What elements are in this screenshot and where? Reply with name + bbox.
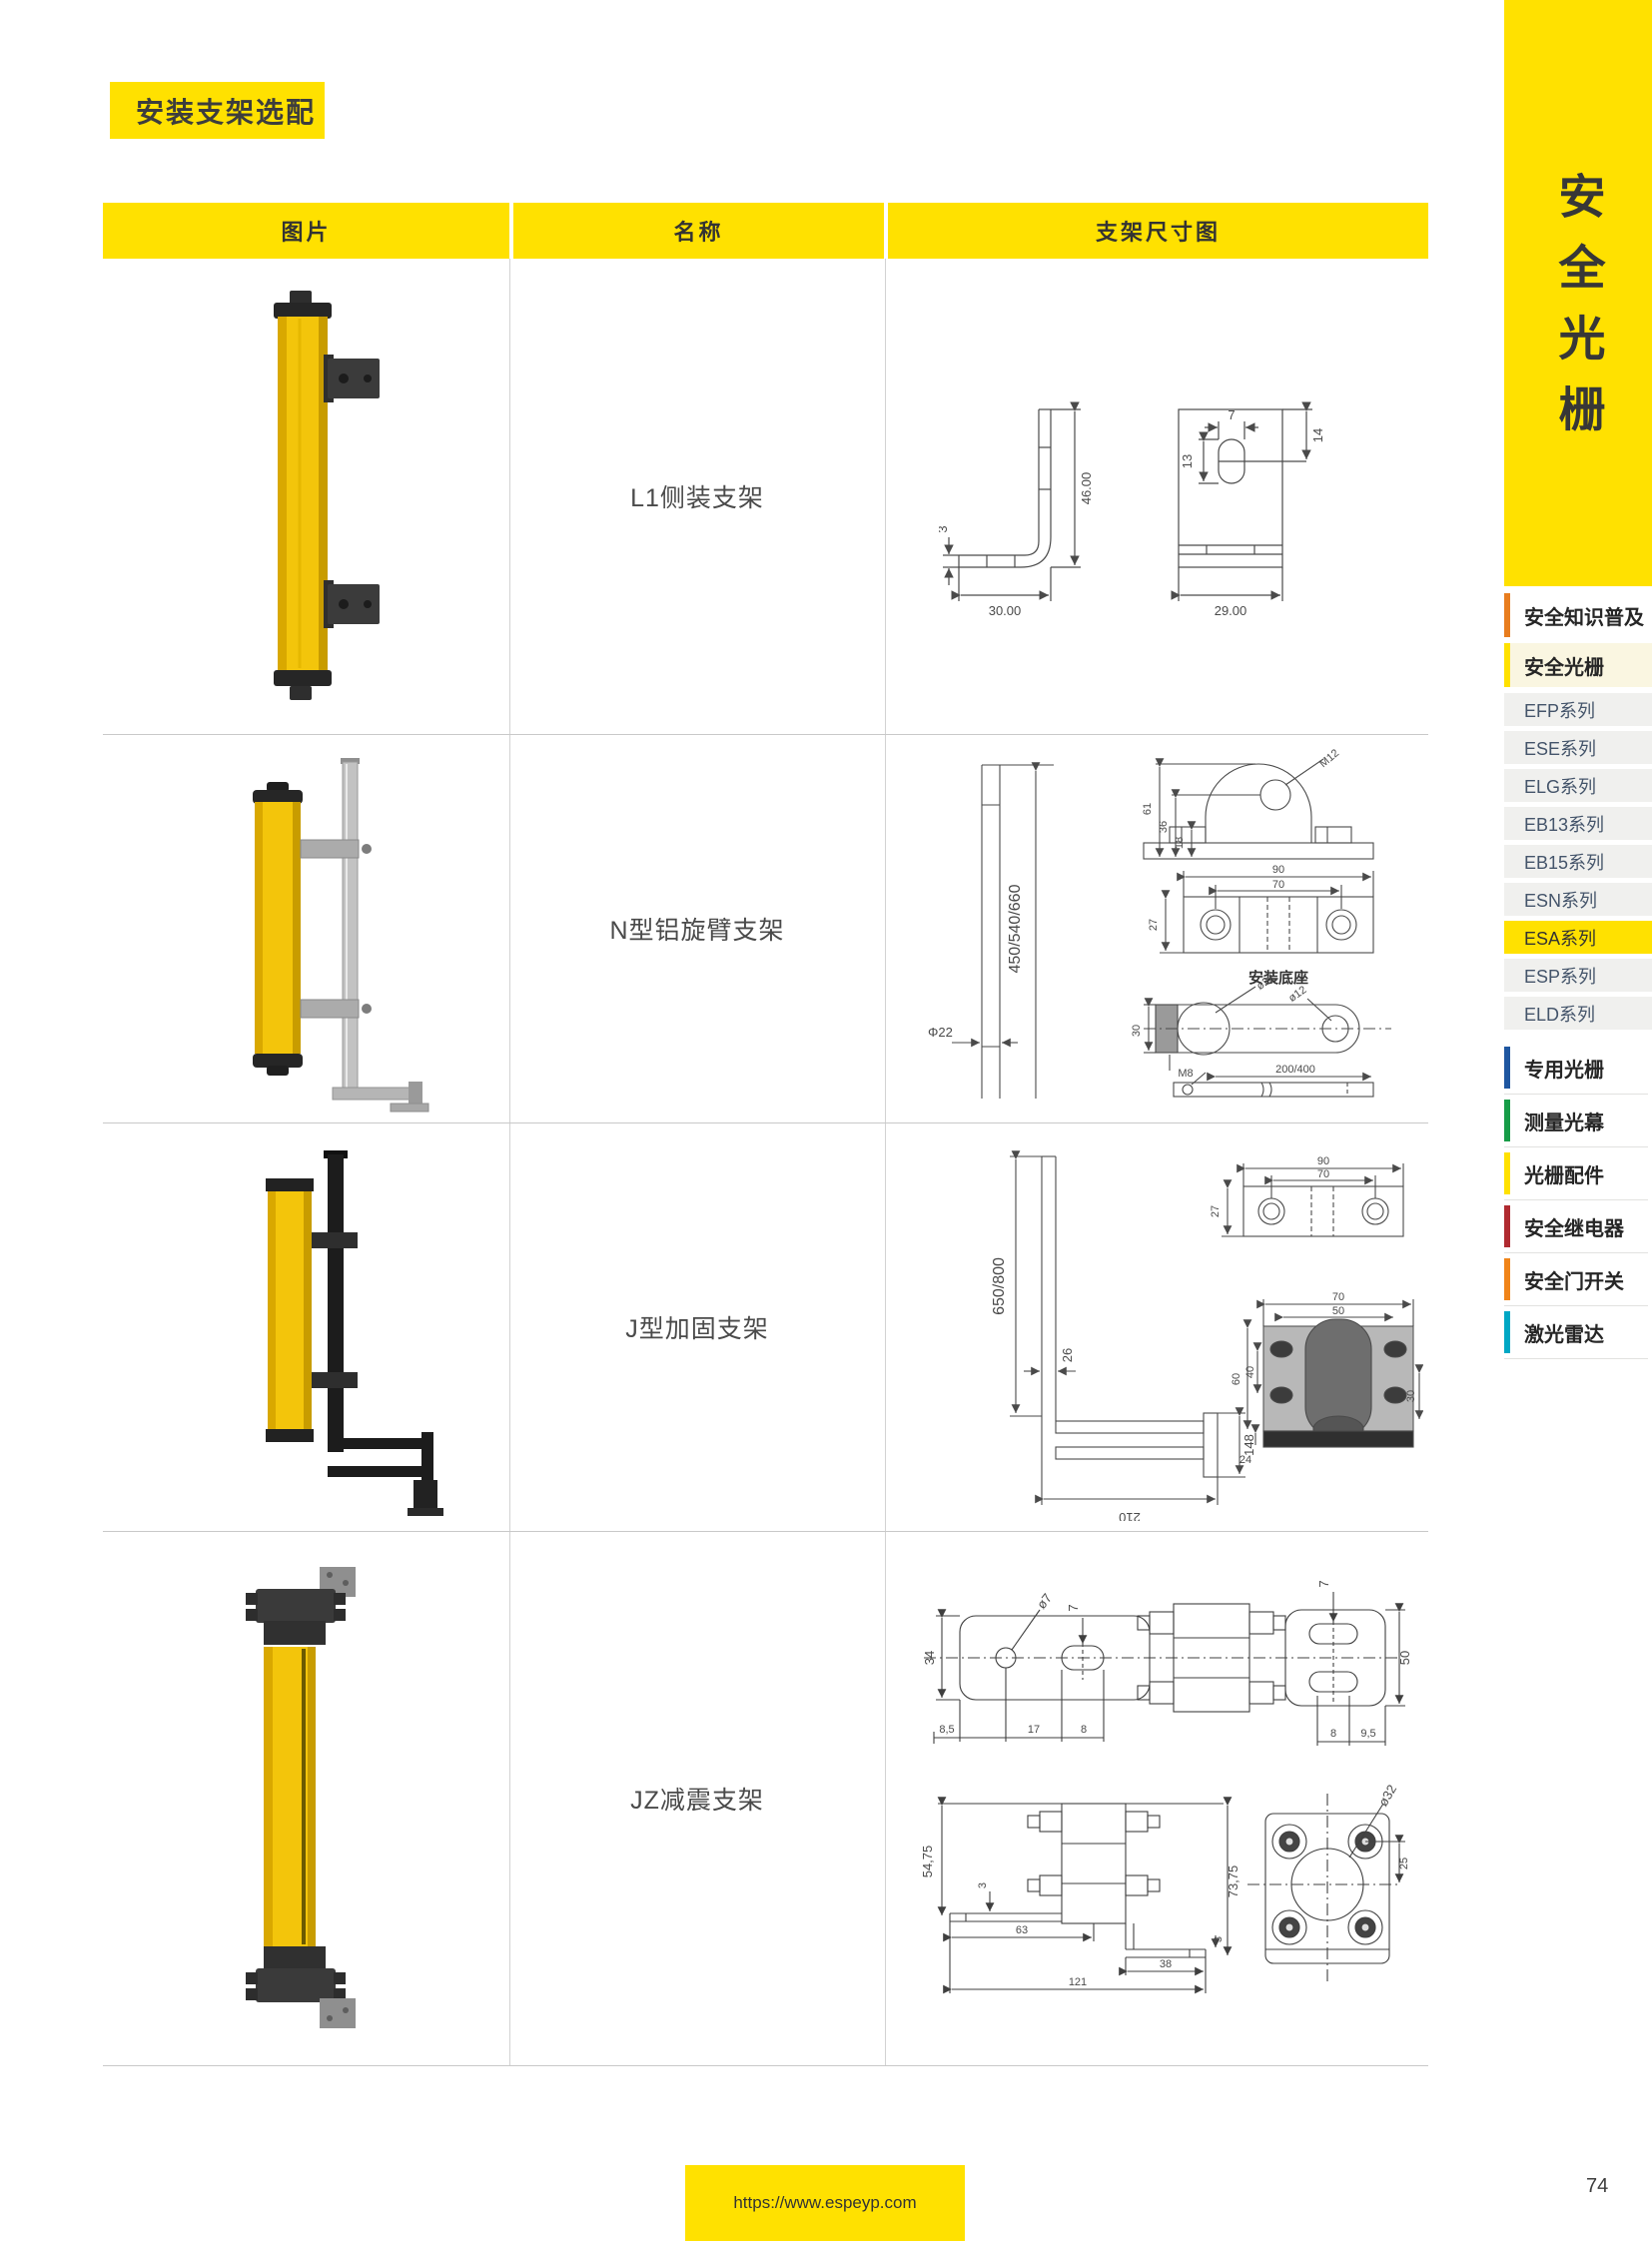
svg-text:7: 7 bbox=[1316, 1580, 1331, 1587]
divider bbox=[1504, 1146, 1648, 1147]
sidebar-item-safety-door-switch[interactable]: 安全门开关 bbox=[1504, 1258, 1652, 1300]
sidebar-item-grating-accessories[interactable]: 光栅配件 bbox=[1504, 1152, 1652, 1194]
sidebar-item-safety-knowledge[interactable]: 安全知识普及 bbox=[1504, 593, 1652, 637]
svg-text:ø7: ø7 bbox=[1034, 1591, 1055, 1612]
sidebar-nav: 安全知识普及 安全光栅 EFP系列 ESE系列 ELG系列 EB13系列 EB1… bbox=[1504, 593, 1652, 1364]
svg-text:7: 7 bbox=[1066, 1604, 1081, 1611]
svg-text:70: 70 bbox=[1332, 1291, 1344, 1303]
row-name-n-arm-bracket: N型铝旋臂支架 bbox=[510, 734, 884, 1122]
category-color-bar bbox=[1504, 1100, 1510, 1141]
sidebar-item-label: 专用光栅 bbox=[1504, 1054, 1604, 1083]
table-header-dimensions: 支架尺寸图 bbox=[888, 203, 1428, 259]
svg-text:M8: M8 bbox=[1178, 1068, 1193, 1080]
table-column-divider bbox=[885, 259, 886, 2065]
divider bbox=[1504, 1305, 1648, 1306]
sidebar-item-label: ESP系列 bbox=[1504, 963, 1596, 989]
svg-text:650/800: 650/800 bbox=[991, 1257, 1008, 1315]
svg-text:450/540/660: 450/540/660 bbox=[1007, 884, 1024, 973]
sidebar-item-measuring-light-curtain[interactable]: 测量光幕 bbox=[1504, 1100, 1652, 1141]
svg-text:90: 90 bbox=[1317, 1155, 1329, 1167]
svg-text:61: 61 bbox=[1142, 803, 1154, 815]
sidebar-item-esp-series[interactable]: ESP系列 bbox=[1504, 959, 1652, 992]
footer-url-badge[interactable]: https://www.espeyp.com bbox=[685, 2165, 965, 2241]
sidebar-item-eb15-series[interactable]: EB15系列 bbox=[1504, 845, 1652, 878]
table-row-divider bbox=[103, 2065, 1428, 2066]
category-color-bar bbox=[1504, 1311, 1510, 1353]
side-view: 54,75 3 63 38 121 3 73,75 bbox=[920, 1804, 1240, 1993]
arch-mount-view: M12 61 36 18 bbox=[1142, 747, 1373, 859]
svg-text:ø32: ø32 bbox=[1375, 1782, 1399, 1809]
sidebar-item-label: 测量光幕 bbox=[1504, 1107, 1604, 1135]
svg-text:14: 14 bbox=[1310, 428, 1325, 442]
sidebar-item-label: 安全门开关 bbox=[1504, 1265, 1624, 1294]
svg-text:54,75: 54,75 bbox=[920, 1846, 935, 1878]
row-name-j-bracket: J型加固支架 bbox=[510, 1122, 884, 1531]
sidebar-item-label: ESE系列 bbox=[1504, 735, 1596, 761]
category-color-bar bbox=[1504, 1205, 1510, 1247]
mount-bar-view: 200/400 bbox=[1174, 1064, 1373, 1097]
divider bbox=[1504, 1199, 1648, 1200]
table-header-name: 名称 bbox=[513, 203, 884, 259]
sidebar-item-efp-series[interactable]: EFP系列 bbox=[1504, 693, 1652, 726]
footer-url[interactable]: https://www.espeyp.com bbox=[733, 2193, 916, 2213]
sidebar-item-label: ELG系列 bbox=[1504, 773, 1596, 799]
sidebar-item-label: 安全知识普及 bbox=[1504, 601, 1644, 630]
svg-text:3: 3 bbox=[1213, 1936, 1225, 1942]
svg-text:50: 50 bbox=[1332, 1305, 1344, 1317]
svg-text:ø12: ø12 bbox=[1286, 984, 1308, 1005]
mount-bracket-bottom bbox=[324, 580, 380, 628]
svg-text:63: 63 bbox=[1016, 1924, 1028, 1936]
dimension-drawing-j-bracket: 650/800 26 148 210 90 70 27 bbox=[904, 1131, 1423, 1521]
svg-text:121: 121 bbox=[1069, 1976, 1087, 1988]
category-color-bar bbox=[1504, 1258, 1510, 1300]
sidebar-item-special-light-curtain[interactable]: 专用光栅 bbox=[1504, 1047, 1652, 1089]
product-image-l1-side-bracket bbox=[212, 285, 402, 709]
sidebar-item-label: 安全光栅 bbox=[1504, 651, 1604, 680]
sidebar-item-elg-series[interactable]: ELG系列 bbox=[1504, 769, 1652, 802]
product-image-n-arm-bracket bbox=[195, 754, 429, 1114]
plate-view: 90 70 27 bbox=[1210, 1155, 1403, 1236]
category-color-bar bbox=[1504, 643, 1510, 687]
category-color-bar bbox=[1504, 593, 1510, 637]
sidebar-item-safety-relay[interactable]: 安全继电器 bbox=[1504, 1205, 1652, 1247]
svg-text:30: 30 bbox=[1131, 1025, 1143, 1037]
sidebar-item-label: 安全继电器 bbox=[1504, 1212, 1624, 1241]
row-name-jz-bracket: JZ减震支架 bbox=[510, 1531, 884, 2065]
svg-text:30.00: 30.00 bbox=[989, 603, 1022, 618]
sidebar-item-label: 激光雷达 bbox=[1504, 1318, 1604, 1347]
svg-text:17: 17 bbox=[1028, 1724, 1040, 1736]
damper-assembly-top bbox=[246, 1589, 346, 1645]
category-color-bar bbox=[1504, 1047, 1510, 1089]
sidebar-item-label: ESA系列 bbox=[1504, 925, 1596, 951]
svg-text:29.00: 29.00 bbox=[1215, 603, 1247, 618]
svg-text:30: 30 bbox=[1405, 1390, 1417, 1402]
mount-bracket-top bbox=[324, 355, 380, 402]
sidebar-item-label: ESN系列 bbox=[1504, 887, 1597, 913]
svg-text:38: 38 bbox=[1160, 1958, 1172, 1970]
page-number: 74 bbox=[1586, 2175, 1608, 2198]
sidebar-item-safety-light-curtain[interactable]: 安全光栅 bbox=[1504, 643, 1652, 687]
divider bbox=[1504, 1252, 1648, 1253]
product-image-j-bracket bbox=[178, 1140, 462, 1522]
svg-text:210: 210 bbox=[1119, 1510, 1141, 1521]
top-view: ø7 7 7 34 50 8,5 bbox=[922, 1580, 1412, 1746]
svg-text:13: 13 bbox=[1180, 454, 1195, 468]
divider bbox=[1504, 1358, 1648, 1359]
sidebar-item-esn-series[interactable]: ESN系列 bbox=[1504, 883, 1652, 916]
svg-text:73,75: 73,75 bbox=[1226, 1866, 1240, 1898]
row-name-l1-bracket: L1侧装支架 bbox=[510, 259, 884, 734]
sidebar-item-label: ELD系列 bbox=[1504, 1001, 1595, 1027]
chapter-tab-label: 安全光栅 bbox=[1555, 172, 1602, 586]
svg-text:7: 7 bbox=[1228, 407, 1235, 422]
svg-text:60: 60 bbox=[1231, 1373, 1242, 1385]
svg-text:3: 3 bbox=[977, 1882, 989, 1888]
svg-text:18: 18 bbox=[1174, 837, 1186, 849]
sidebar-item-eld-series[interactable]: ELD系列 bbox=[1504, 997, 1652, 1030]
sidebar-item-laser-radar[interactable]: 激光雷达 bbox=[1504, 1311, 1652, 1353]
sidebar-item-eb13-series[interactable]: EB13系列 bbox=[1504, 807, 1652, 840]
swing-arm-view: ø22 ø12 M8 30 bbox=[1131, 972, 1391, 1080]
svg-text:200/400: 200/400 bbox=[1275, 1064, 1315, 1076]
svg-text:34: 34 bbox=[922, 1651, 937, 1665]
svg-text:27: 27 bbox=[1210, 1205, 1222, 1217]
svg-text:25: 25 bbox=[1398, 1858, 1410, 1869]
svg-text:24: 24 bbox=[1239, 1454, 1251, 1466]
plate-view: 90 70 27 bbox=[1148, 864, 1373, 953]
divider bbox=[1504, 1094, 1648, 1095]
category-color-bar bbox=[1504, 1152, 1510, 1194]
svg-text:36: 36 bbox=[1158, 821, 1170, 833]
svg-text:50: 50 bbox=[1397, 1651, 1412, 1665]
svg-text:Φ22: Φ22 bbox=[928, 1025, 953, 1040]
dimension-drawing-n-arm-bracket: 450/540/660 Φ22 M12 61 36 18 bbox=[904, 747, 1413, 1109]
svg-text:40: 40 bbox=[1244, 1366, 1256, 1378]
sidebar-item-label: 光栅配件 bbox=[1504, 1159, 1604, 1188]
svg-text:9,5: 9,5 bbox=[1360, 1728, 1375, 1740]
svg-text:8: 8 bbox=[1081, 1724, 1087, 1736]
svg-text:3: 3 bbox=[939, 525, 950, 532]
svg-text:90: 90 bbox=[1272, 864, 1284, 876]
svg-text:M12: M12 bbox=[1317, 747, 1341, 770]
clamp-view: 70 50 60 40 30 24 bbox=[1231, 1291, 1419, 1466]
page-title: 安装支架选配 bbox=[110, 82, 325, 139]
sidebar-item-label: EB13系列 bbox=[1504, 811, 1604, 837]
svg-text:70: 70 bbox=[1272, 879, 1284, 891]
svg-text:148: 148 bbox=[1241, 1434, 1256, 1456]
damper-assembly-bottom bbox=[246, 1946, 346, 2002]
face-view: ø32 25 bbox=[1247, 1782, 1410, 1983]
sidebar-item-ese-series[interactable]: ESE系列 bbox=[1504, 731, 1652, 764]
svg-text:70: 70 bbox=[1317, 1168, 1329, 1180]
dimension-drawing-l1-bracket: 46.00 30.00 3 7 13 14 29.00 bbox=[939, 397, 1378, 637]
svg-text:8,5: 8,5 bbox=[939, 1724, 954, 1736]
sidebar-item-label: EFP系列 bbox=[1504, 697, 1595, 723]
sidebar-item-esa-series-active[interactable]: ESA系列 bbox=[1504, 921, 1652, 954]
dimension-drawing-jz-bracket: ø7 7 7 34 50 8,5 bbox=[894, 1546, 1413, 2050]
catalog-page: 安装支架选配 图片 名称 支架尺寸图 L1侧装支架 N型铝旋臂支架 J型加固支架… bbox=[0, 0, 1652, 2241]
table-header-image: 图片 bbox=[103, 203, 509, 259]
svg-text:27: 27 bbox=[1148, 919, 1160, 931]
svg-text:46.00: 46.00 bbox=[1079, 472, 1094, 505]
svg-text:8: 8 bbox=[1330, 1728, 1336, 1740]
sidebar-item-label: EB15系列 bbox=[1504, 849, 1604, 875]
chapter-tab-safety-light-curtain: 安全光栅 bbox=[1504, 0, 1652, 586]
product-image-jz-bracket bbox=[200, 1563, 400, 2032]
svg-text:26: 26 bbox=[1060, 1348, 1075, 1362]
